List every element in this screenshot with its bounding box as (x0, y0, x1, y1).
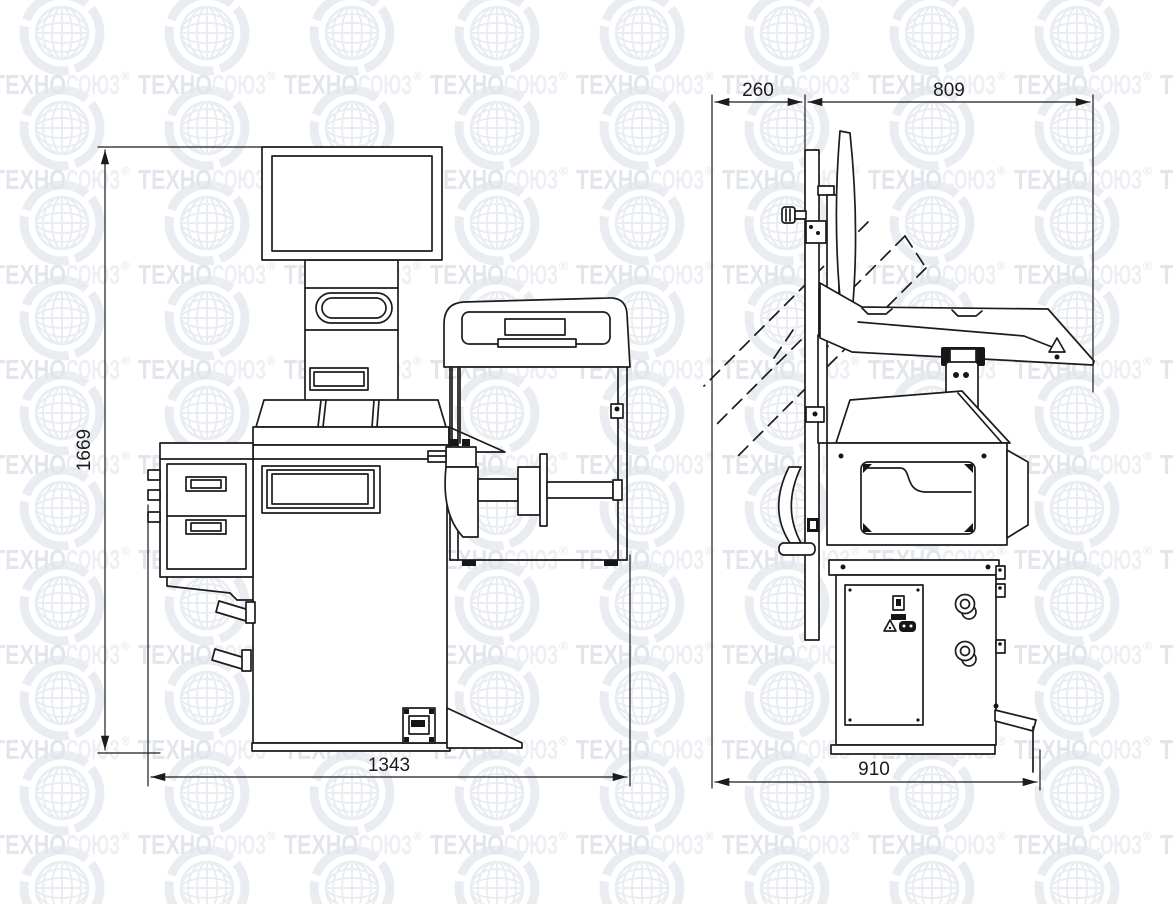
monitor (262, 147, 442, 260)
adjust-knob (782, 207, 795, 223)
technical-drawing-canvas: ТЕХНО СОЮЗ ® (0, 0, 1173, 904)
base-plate (252, 743, 450, 751)
width-dimension-label: 1343 (368, 755, 410, 776)
warning-label-panel (845, 585, 923, 725)
rear-depth-dimension-label: 260 (742, 80, 774, 101)
overall-depth-dimension-label: 910 (858, 759, 890, 780)
side-panel-cutout (861, 462, 975, 534)
front-depth-dimension-label: 809 (933, 80, 965, 101)
wheel-flange (518, 467, 540, 515)
shaft (547, 482, 613, 498)
display-window (262, 466, 380, 513)
drawer-cabinet (148, 443, 253, 600)
monitor-side (836, 131, 855, 318)
power-inlet (403, 708, 435, 743)
flange-disc (540, 454, 547, 526)
height-dimension-label: 1669 (74, 429, 95, 471)
wheel-balancer-dimension-drawing: ТЕХНО СОЮЗ ® (0, 0, 1173, 904)
support-column (305, 260, 398, 402)
base-plate (831, 745, 995, 754)
